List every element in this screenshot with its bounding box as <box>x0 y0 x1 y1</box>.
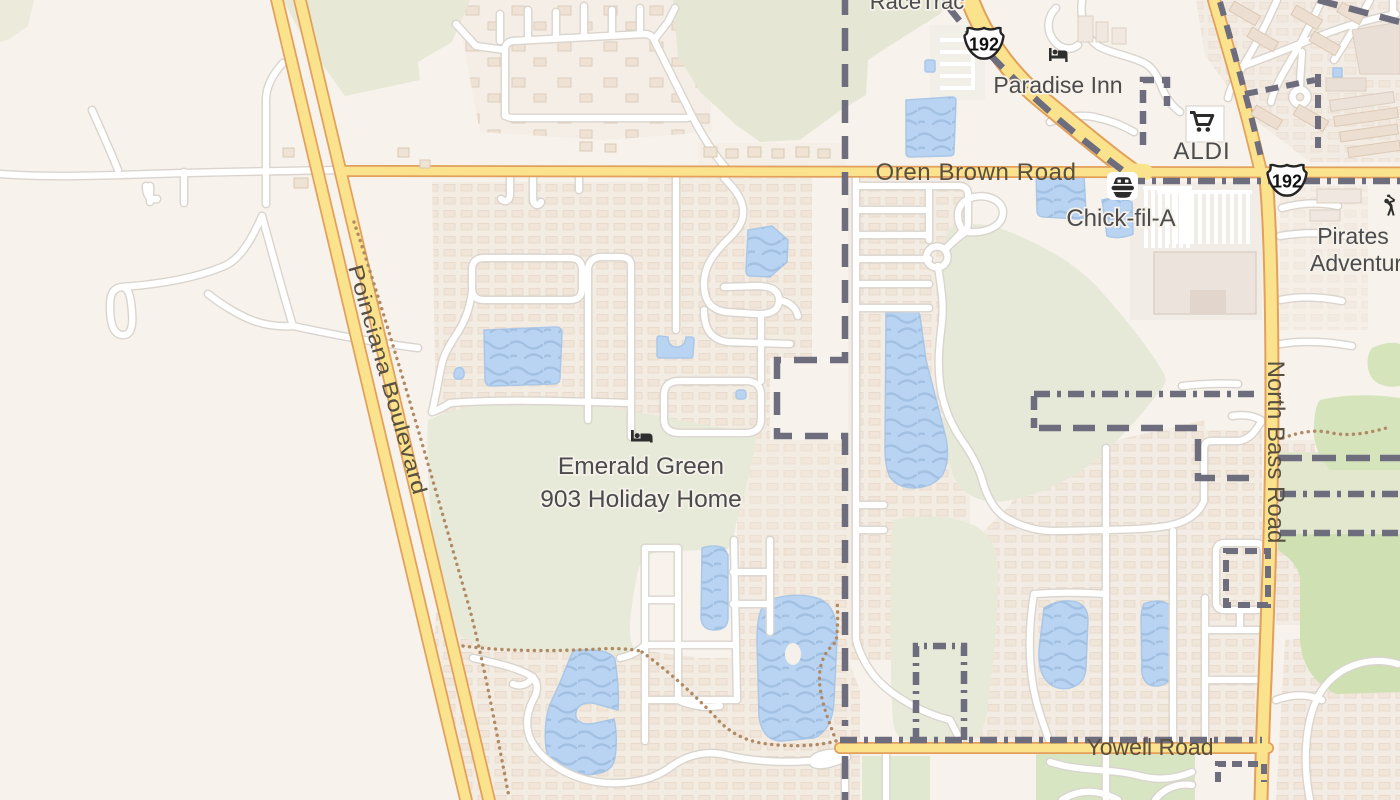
svg-text:Adventure: Adventure <box>1310 250 1400 276</box>
svg-text:Yowell Road: Yowell Road <box>1086 734 1213 760</box>
svg-text:903 Holiday Home: 903 Holiday Home <box>540 486 742 513</box>
svg-text:Chick-fil-A: Chick-fil-A <box>1066 205 1175 232</box>
svg-text:RaceTrac: RaceTrac <box>870 0 965 14</box>
svg-text:Emerald Green: Emerald Green <box>558 453 724 480</box>
svg-text:192: 192 <box>1272 172 1302 192</box>
svg-text:ALDI: ALDI <box>1173 138 1230 165</box>
svg-text:Paradise Inn: Paradise Inn <box>993 72 1122 98</box>
svg-text:Pirates: Pirates <box>1317 223 1389 249</box>
svg-text:Oren Brown Road: Oren Brown Road <box>875 159 1076 186</box>
svg-text:North Bass Road: North Bass Road <box>1262 361 1289 544</box>
svg-text:192: 192 <box>969 35 999 55</box>
